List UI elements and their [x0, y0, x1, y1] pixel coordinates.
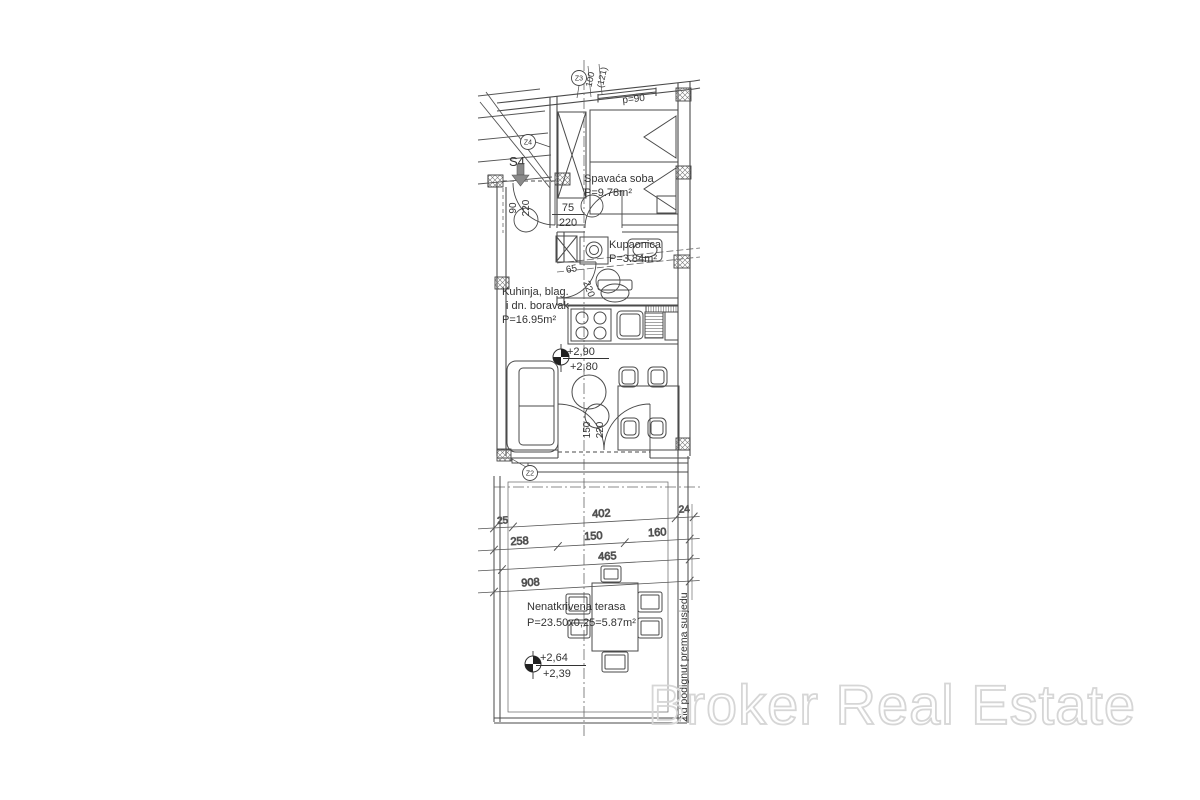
sofa [507, 361, 558, 452]
dim-24: 24 [678, 504, 690, 516]
dim-402: 402 [592, 507, 611, 520]
level-marker-living: +2,90 +2,80 [553, 344, 609, 373]
level-terrace-bottom: +2,39 [543, 668, 571, 680]
bathroom-door-height: 220 [580, 279, 596, 299]
living-name-line1: Kuhinja, blag. [502, 286, 569, 298]
dim-25: 25 [497, 515, 509, 527]
detail-markers [512, 71, 587, 481]
dim-908: 908 [521, 576, 540, 589]
marker-z4-label: Z4 [524, 140, 532, 147]
entrance-height: 220 [521, 199, 532, 216]
bathroom-name: Kupaonica [609, 239, 662, 251]
floor-plan-drawing: 25 402 24 258 150 160 465 908 +2,90 +2 [0, 0, 1200, 800]
marker-z2-label: Z2 [526, 471, 534, 478]
roof-window-dim2: (121) [595, 66, 609, 89]
terrace-area: P=23.50x0,25=5.87m² [527, 617, 636, 629]
terrace-boundary [494, 456, 688, 723]
dim-160: 160 [648, 526, 667, 539]
terrace-door-height: 220 [595, 421, 606, 438]
dim-258: 258 [510, 535, 529, 548]
bathroom-door-width: 65 [565, 263, 578, 276]
bedroom-door-height: 220 [559, 217, 577, 229]
bedroom-name: Spavaća soba [584, 173, 655, 185]
terrace-name: Nenatkrivena terasa [527, 601, 626, 613]
wardrobe [558, 112, 586, 198]
boundary-wall-note: Zid podignut prema susjedu [678, 592, 690, 722]
bedroom-area: P=9.78m² [584, 187, 632, 199]
bathroom-area: P=3.84m² [609, 253, 657, 265]
dimension-lines: 25 402 24 258 150 160 465 908 [477, 503, 700, 600]
walls [488, 80, 700, 458]
entrance-width: 90 [508, 202, 519, 214]
dim-465: 465 [598, 550, 617, 563]
dim-150: 150 [584, 530, 603, 543]
level-terrace-top: +2,64 [540, 652, 568, 664]
shaft [556, 236, 577, 262]
coffee-table [572, 375, 609, 428]
roof-window-label: p=90 [622, 93, 646, 106]
level-marker-terrace: +2,64 +2,39 [525, 651, 586, 680]
level-living-top: +2,90 [567, 346, 595, 358]
room-labels: Spavaća soba P=9.78m² Kupaonica P=3.84m²… [502, 173, 662, 629]
level-living-bottom: +2,80 [570, 361, 598, 373]
terrace-door-width: 150 [582, 421, 593, 438]
kitchen-counter [568, 306, 678, 344]
dining-set [618, 367, 679, 450]
bedroom-door-width: 75 [562, 202, 574, 214]
living-area: P=16.95m² [502, 314, 556, 326]
nightstand [657, 196, 676, 213]
floor-plan-page: 25 402 24 258 150 160 465 908 +2,90 +2 [0, 0, 1200, 800]
living-name-line2: i dn. boravak [506, 300, 569, 312]
marker-z3-label: Z3 [575, 76, 583, 83]
staircase [478, 89, 552, 188]
